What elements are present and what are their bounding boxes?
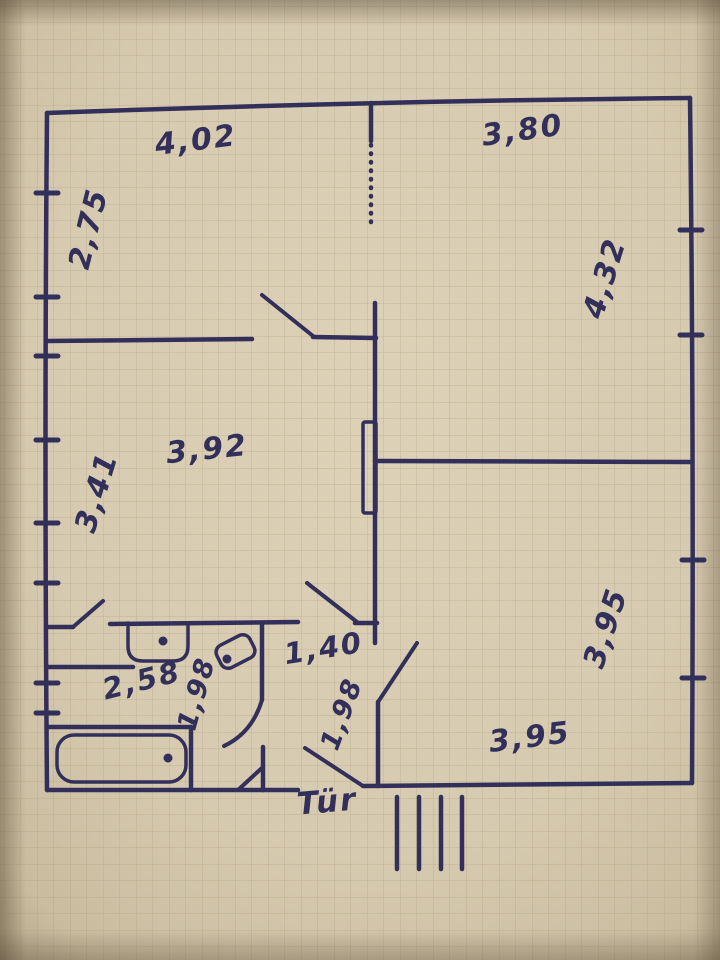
wall-bathroom-top — [110, 622, 298, 624]
bathtub-drain-dot — [164, 754, 173, 763]
wall-outer-bottom-right — [363, 783, 692, 786]
photo-shadow-bottom — [0, 930, 720, 960]
wall-right-room-top — [375, 461, 690, 462]
toilet-drain-dot — [223, 655, 232, 664]
floor-plan-photo: 4,023,802,754,323,923,413,953,951,402,58… — [0, 0, 720, 960]
photo-shadow-right — [694, 0, 720, 960]
floor-plan-sketch: 4,023,802,754,323,923,413,953,951,402,58… — [0, 0, 720, 960]
door-label: Tür — [295, 781, 358, 822]
photo-shadow-top — [0, 0, 720, 26]
sink-drain-dot — [159, 637, 168, 646]
wall-top-rooms-divider-b — [313, 337, 376, 338]
wall-outer-left — [46, 113, 48, 790]
photo-shadow-left — [0, 0, 26, 960]
wall-top-rooms-divider-a — [47, 339, 252, 341]
